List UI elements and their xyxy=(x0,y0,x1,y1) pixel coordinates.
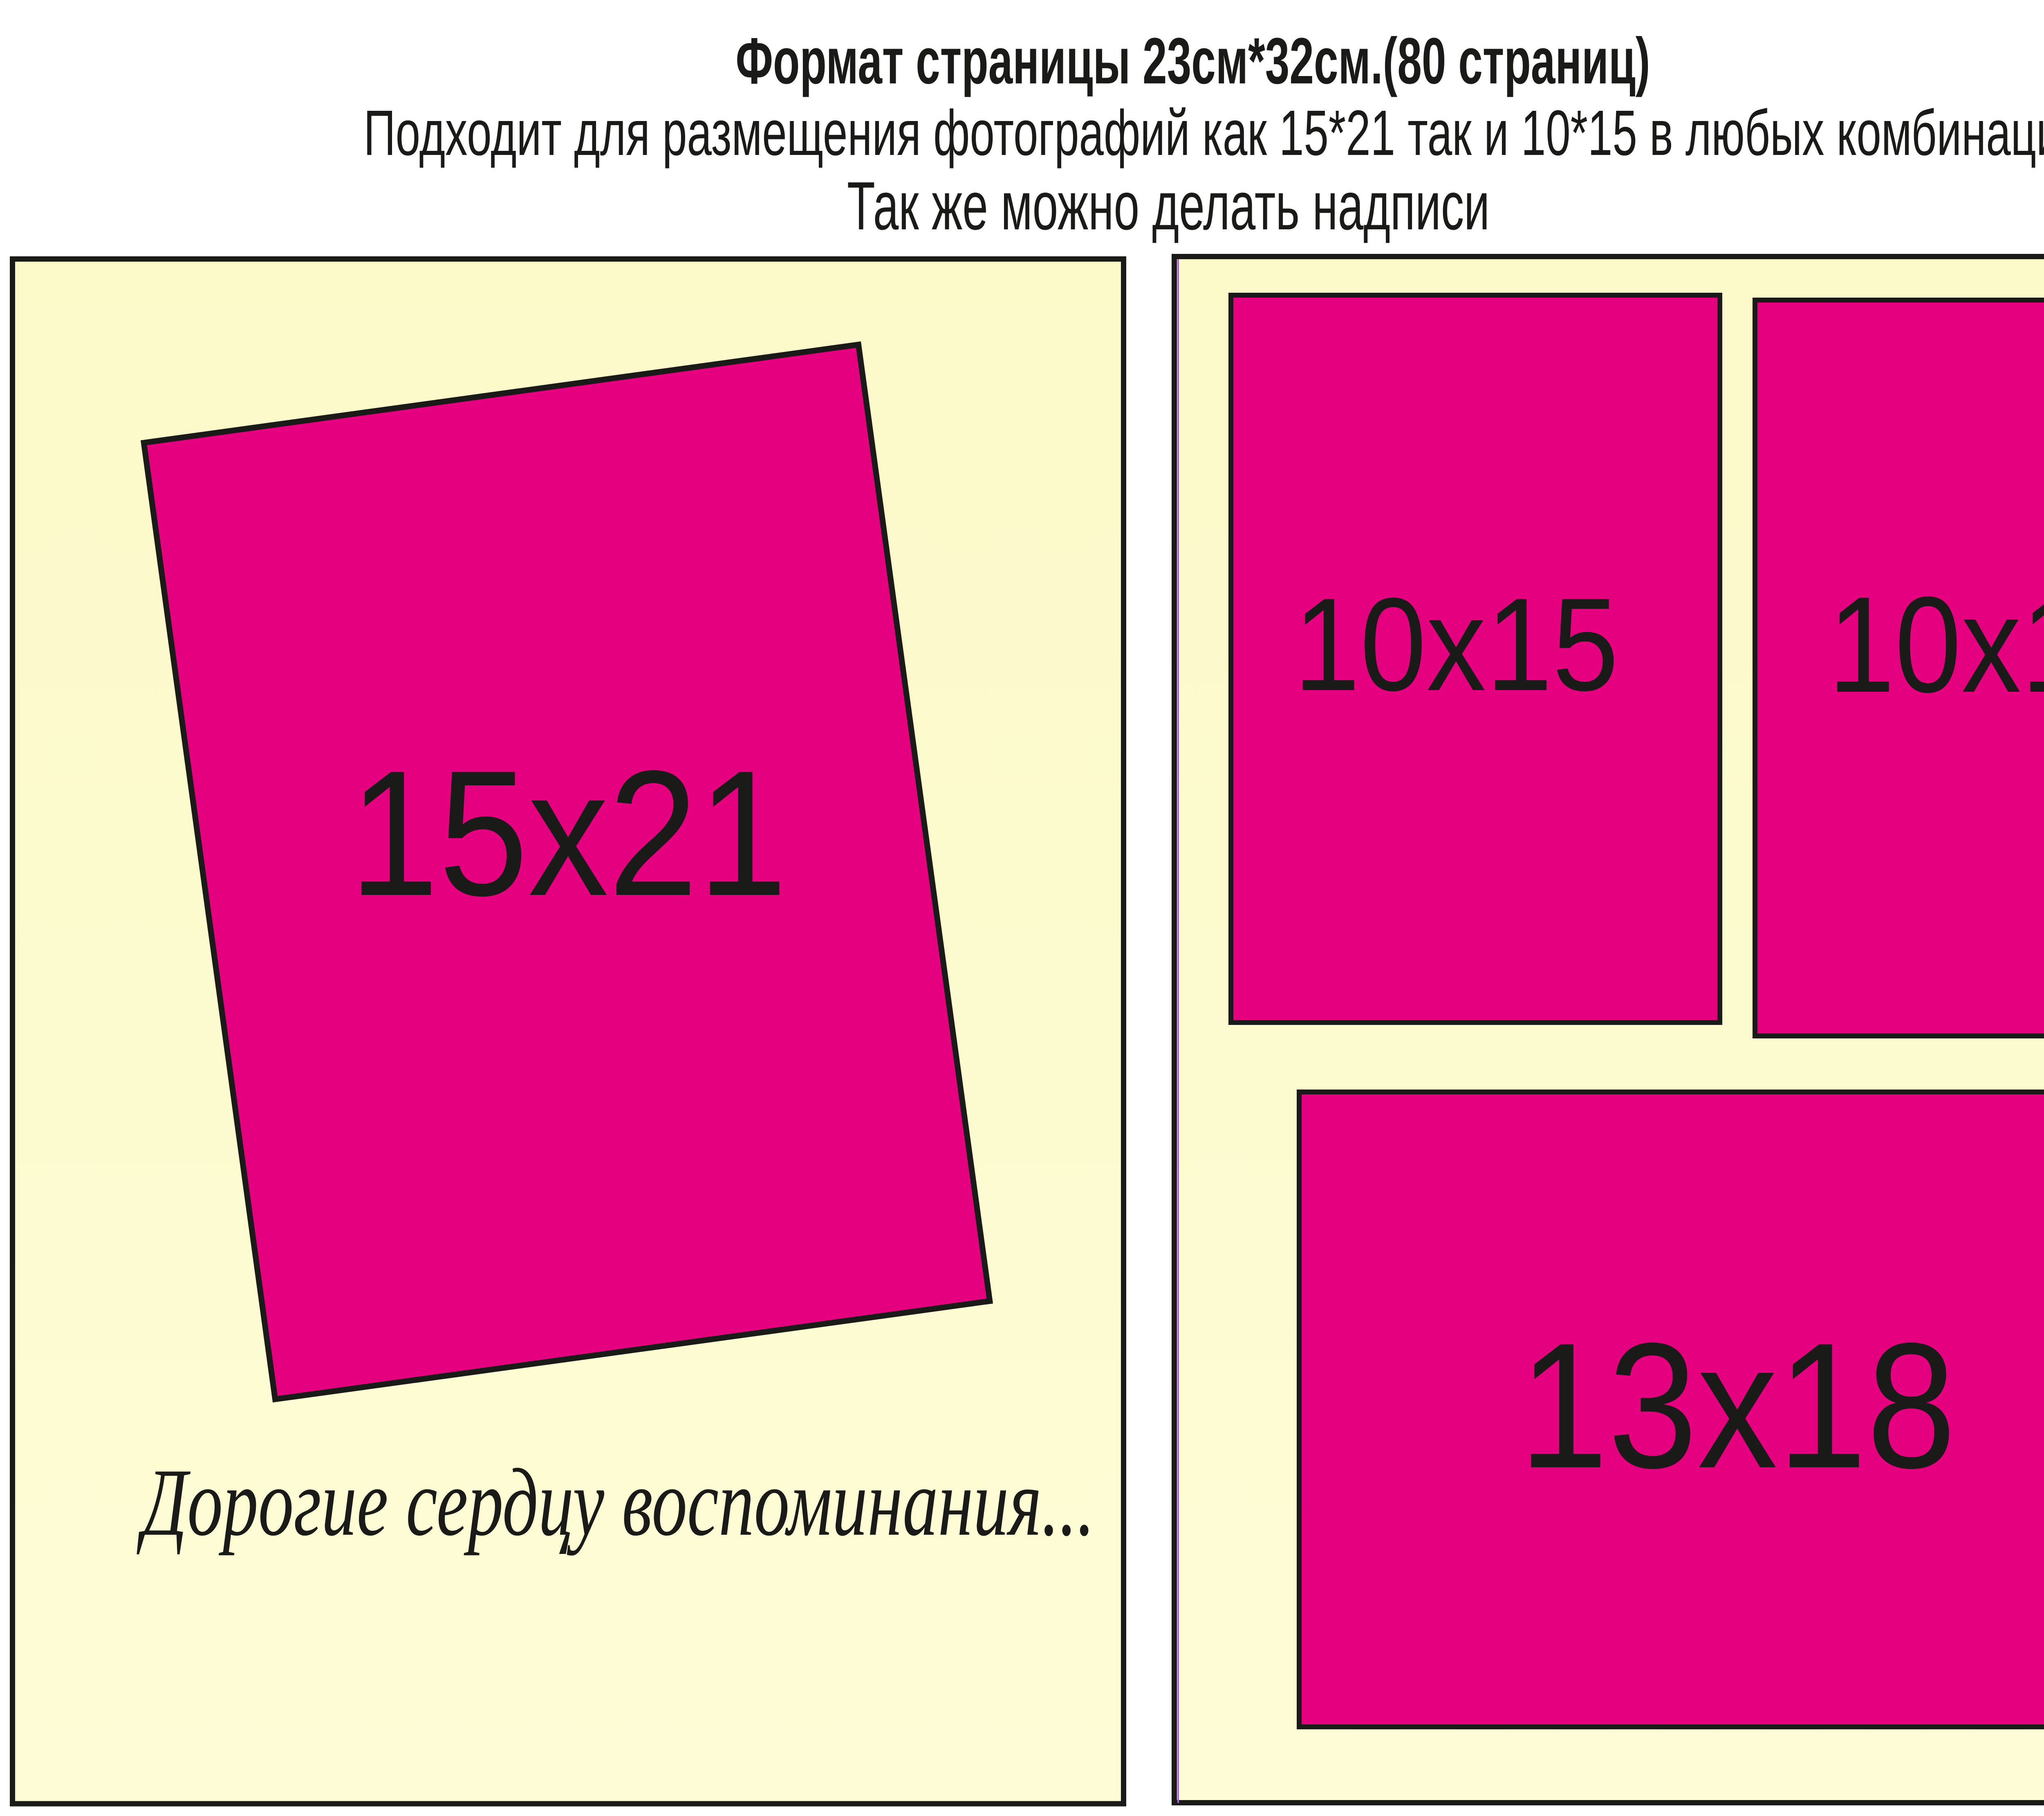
svg-text:15x21: 15x21 xyxy=(350,733,787,933)
svg-text:Так же можно делать надписи: Так же можно делать надписи xyxy=(847,168,1490,244)
svg-text:Формат страницы 23см*32см.(80: Формат страницы 23см*32см.(80 страниц) xyxy=(736,24,1650,97)
svg-text:10x15: 10x15 xyxy=(1828,568,2044,721)
svg-text:Дорогие сердцу воспоминания...: Дорогие сердцу воспоминания... xyxy=(137,1449,1095,1556)
svg-text:Подходит для размещения фотогр: Подходит для размещения фотографий как 1… xyxy=(364,97,2044,169)
svg-text:10x15: 10x15 xyxy=(1294,570,1619,718)
svg-text:13x18: 13x18 xyxy=(1519,1305,1956,1505)
